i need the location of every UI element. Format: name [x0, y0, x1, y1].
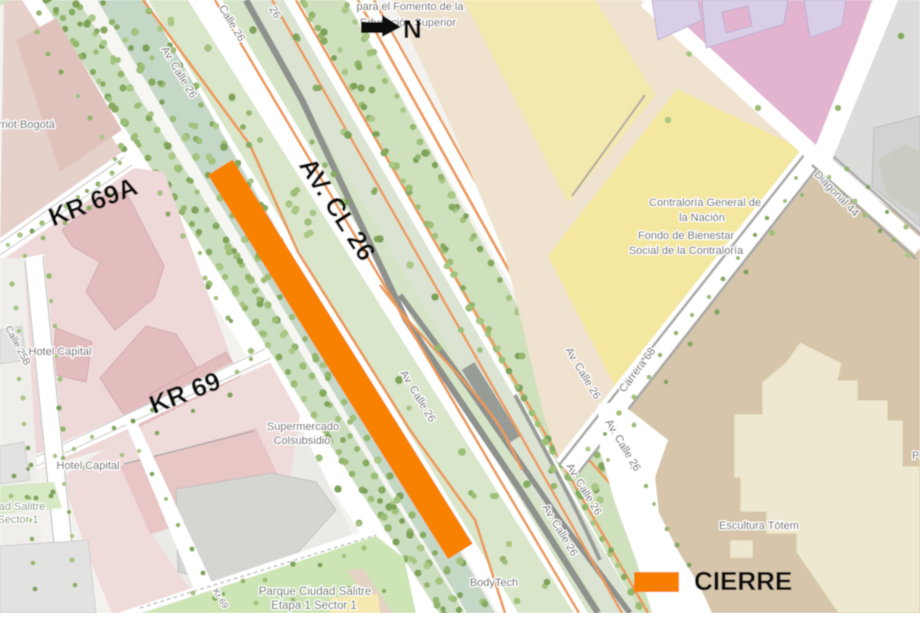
svg-text:N: N	[403, 14, 422, 44]
svg-text:rriot Bogotá: rriot Bogotá	[0, 119, 56, 131]
svg-text:para el Fomento de la: para el Fomento de la	[356, 1, 464, 13]
svg-text:Sector 1: Sector 1	[0, 514, 38, 526]
svg-text:Escultura Tótem: Escultura Tótem	[719, 520, 799, 532]
svg-text:BodyTech: BodyTech	[470, 577, 518, 589]
svg-text:CIERRE: CIERRE	[694, 566, 792, 596]
svg-text:Fondo de Bienestar: Fondo de Bienestar	[638, 230, 734, 242]
svg-text:Parque Ciudad Salitre: Parque Ciudad Salitre	[259, 586, 372, 598]
svg-text:Etapa 1 Sector 1: Etapa 1 Sector 1	[271, 600, 357, 612]
svg-text:Supermercado: Supermercado	[267, 421, 339, 433]
svg-text:Hotel Capital: Hotel Capital	[29, 346, 92, 358]
svg-text:la Nación: la Nación	[679, 212, 725, 224]
svg-text:Colsubsidio: Colsubsidio	[274, 435, 331, 447]
svg-text:Social de la Contraloría: Social de la Contraloría	[629, 245, 744, 257]
svg-text:Contraloría General de: Contraloría General de	[649, 197, 761, 209]
svg-text:ad Salitre: ad Salitre	[0, 501, 45, 513]
svg-text:Hotel Capital: Hotel Capital	[57, 460, 120, 472]
svg-text:Pe: Pe	[912, 450, 920, 462]
